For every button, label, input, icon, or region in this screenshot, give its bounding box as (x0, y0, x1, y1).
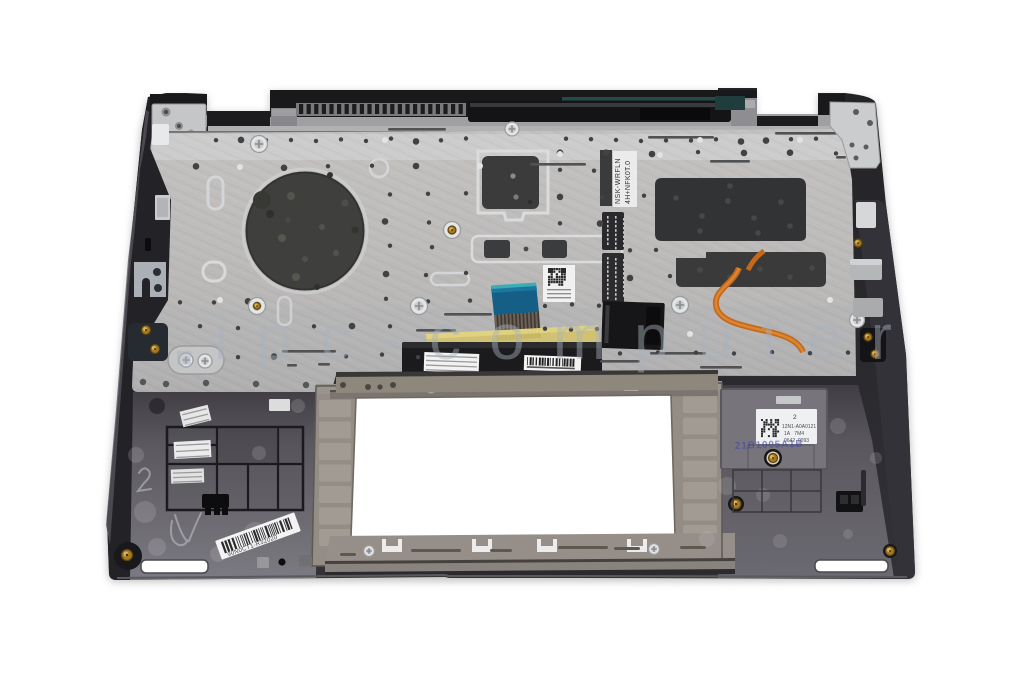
svg-text:1A 7M4: 1A 7M4 (784, 431, 804, 437)
svg-text:ipc-computer: ipc-computer (214, 301, 920, 373)
svg-text:4H+NFK0T.0: 4H+NFK0T.0 (625, 161, 632, 204)
svg-text:12N1-A0A0121: 12N1-A0A0121 (782, 424, 816, 430)
svg-text:2: 2 (793, 414, 797, 421)
svg-text:NSK-WRFLN: NSK-WRFLN (615, 158, 622, 204)
